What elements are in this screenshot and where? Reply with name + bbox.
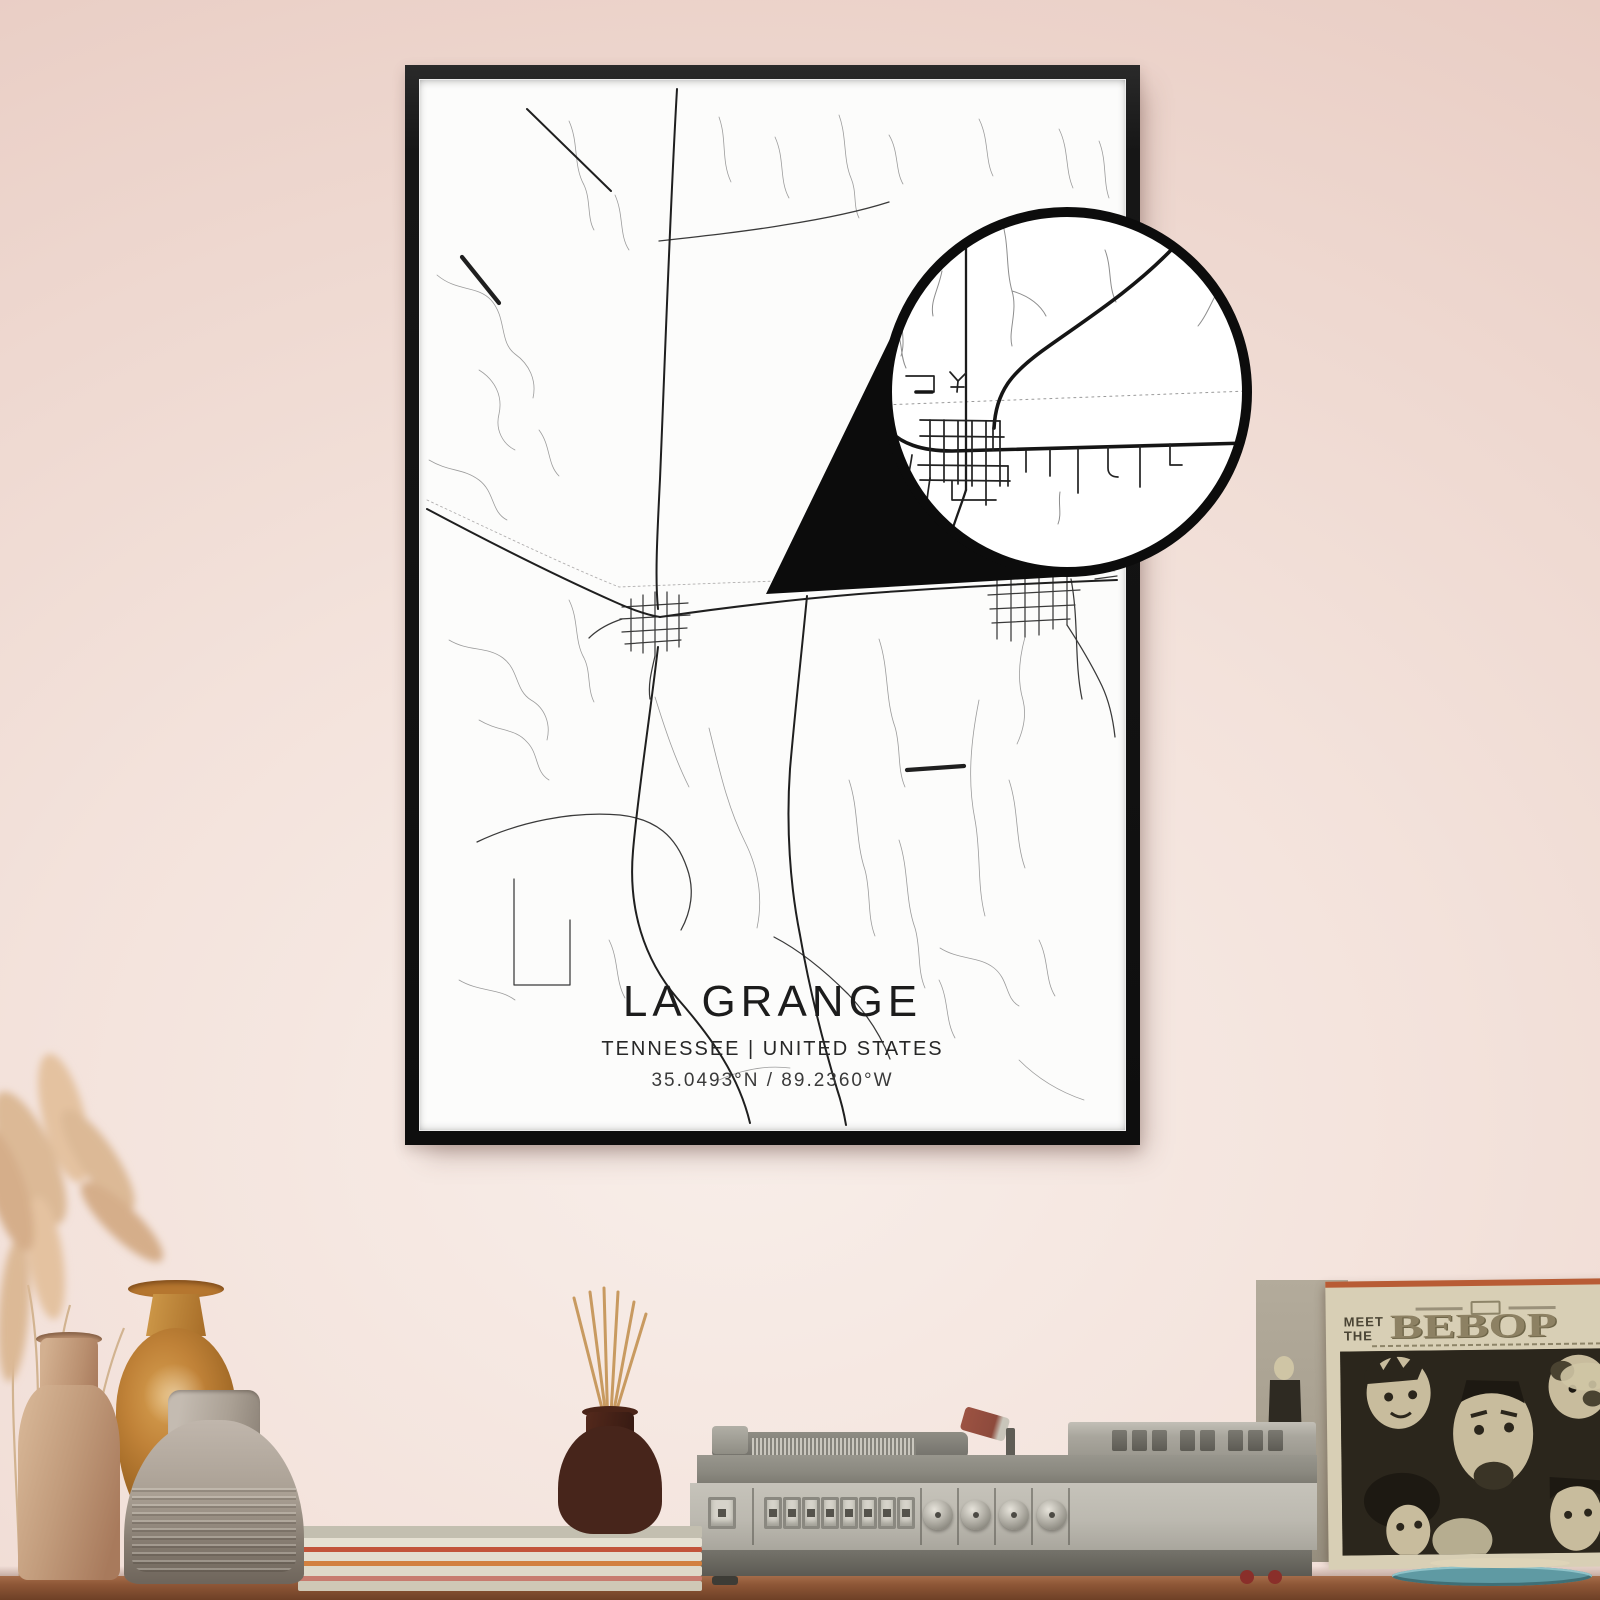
gray-vase-ribs <box>132 1488 296 1572</box>
magazine-stack <box>298 1522 702 1592</box>
tan-vase-neck <box>40 1338 98 1390</box>
cassette-key <box>1268 1430 1283 1451</box>
preset-button <box>859 1497 877 1529</box>
flat-record-teal <box>1392 1566 1592 1586</box>
balance-knob <box>961 1500 991 1530</box>
record-sleeve-front: MEET THE BEBOP <box>1325 1278 1600 1570</box>
preset-button <box>802 1497 820 1529</box>
preset-button <box>821 1497 839 1529</box>
flat-record-cream <box>1430 1558 1570 1568</box>
player-top-band <box>697 1455 1317 1483</box>
turntable-hinge <box>712 1426 748 1454</box>
sleeve-word-bebop: BEBOP <box>1390 1307 1558 1347</box>
cassette-key <box>1132 1430 1147 1451</box>
magazine <box>298 1538 702 1547</box>
cassette-key <box>1248 1430 1263 1451</box>
preset-button <box>840 1497 858 1529</box>
sleeve-word-meet: MEET <box>1344 1315 1384 1329</box>
preset-button <box>764 1497 782 1529</box>
treble-knob <box>1037 1500 1067 1530</box>
volume-knob <box>923 1500 953 1530</box>
magazine <box>298 1566 702 1576</box>
preset-button <box>783 1497 801 1529</box>
sleeve-meet-the-label: MEET THE <box>1344 1315 1384 1343</box>
cassette-key <box>1228 1430 1243 1451</box>
cassette-key <box>1180 1430 1195 1451</box>
panel-divider <box>1068 1488 1070 1545</box>
sleeve-faces-art <box>1340 1348 1600 1555</box>
room-scene: LA GRANGE TENNESSEE | UNITED STATES 35.0… <box>0 0 1600 1600</box>
panel-divider <box>752 1488 754 1545</box>
panel-divider <box>994 1488 996 1545</box>
player-foot <box>1268 1570 1282 1584</box>
panel-divider <box>957 1488 959 1545</box>
player-foot <box>1240 1570 1254 1584</box>
bass-knob <box>999 1500 1029 1530</box>
panel-divider <box>920 1488 922 1545</box>
preset-button <box>897 1497 915 1529</box>
preset-button <box>878 1497 896 1529</box>
sleeve-word-the: THE <box>1344 1329 1384 1343</box>
power-button <box>708 1497 736 1529</box>
cassette-key <box>1200 1430 1215 1451</box>
magazine <box>298 1552 702 1561</box>
tan-vase <box>18 1385 120 1580</box>
cassette-key <box>1152 1430 1167 1451</box>
sleeve-artwork <box>1340 1348 1600 1555</box>
diffuser-bottle <box>558 1426 662 1534</box>
platter-ribs <box>752 1438 916 1456</box>
magazine <box>298 1581 702 1591</box>
player-base <box>698 1550 1312 1576</box>
player-foot <box>712 1576 738 1585</box>
cassette-key <box>1112 1430 1127 1451</box>
panel-divider <box>1031 1488 1033 1545</box>
